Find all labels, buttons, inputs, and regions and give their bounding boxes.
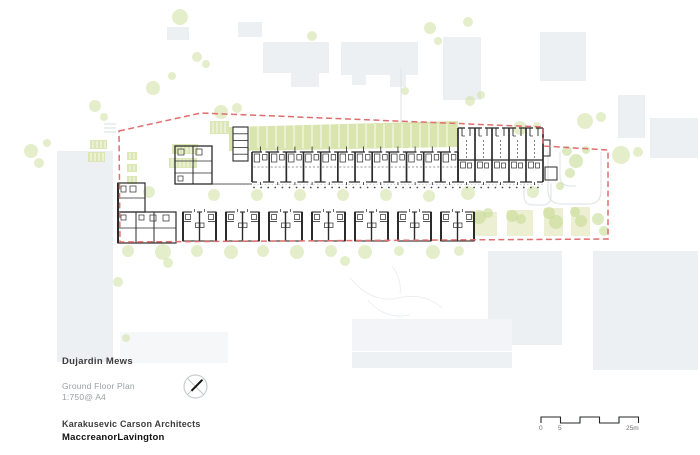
architect-primary: Karakusevic Carson Architects: [62, 419, 201, 429]
scale-label-25m: 25m: [626, 425, 639, 432]
title-block: Dujardin Mews Ground Floor Plan 1:750@ A…: [62, 356, 201, 443]
scale-bar: [541, 417, 639, 423]
drawing-scale: 1:750@ A4: [62, 392, 201, 403]
scale-label-0: 0: [539, 425, 543, 432]
scale-label-5: 5: [558, 425, 562, 432]
drawing-name: Ground Floor Plan: [62, 381, 201, 392]
architect-secondary: MaccreanorLavington: [62, 432, 201, 443]
project-title: Dujardin Mews: [62, 356, 201, 367]
drawing-sheet: Dujardin Mews Ground Floor Plan 1:750@ A…: [0, 0, 700, 455]
